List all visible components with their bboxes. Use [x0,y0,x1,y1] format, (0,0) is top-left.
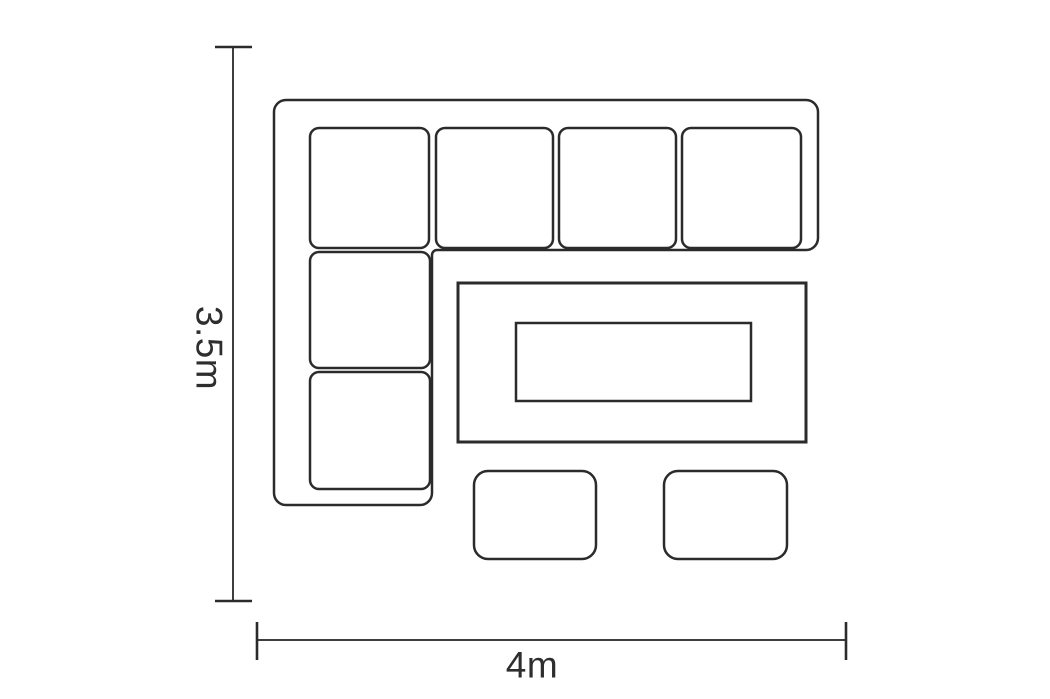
sofa-seat-cushion-2 [436,128,553,248]
width-dimension-label: 4m [506,647,558,684]
sofa-seat-cushion-1 [310,128,429,248]
coffee-table-inner-panel [516,323,751,401]
sofa-seat-cushion-4 [682,128,801,248]
stool-left [474,471,596,559]
sofa-seat-cushion-3 [559,128,676,248]
corner-sofa-outline [274,100,818,505]
stool-right [664,471,787,559]
sofa-seat-cushion-6 [310,372,430,489]
sofa-seat-cushion-5 [310,252,430,368]
floor-plan-canvas: 3.5m 4m [0,0,1050,699]
floor-plan-diagram [0,0,1050,699]
height-dimension-label: 3.5m [191,306,228,390]
coffee-table-outline [458,283,806,442]
